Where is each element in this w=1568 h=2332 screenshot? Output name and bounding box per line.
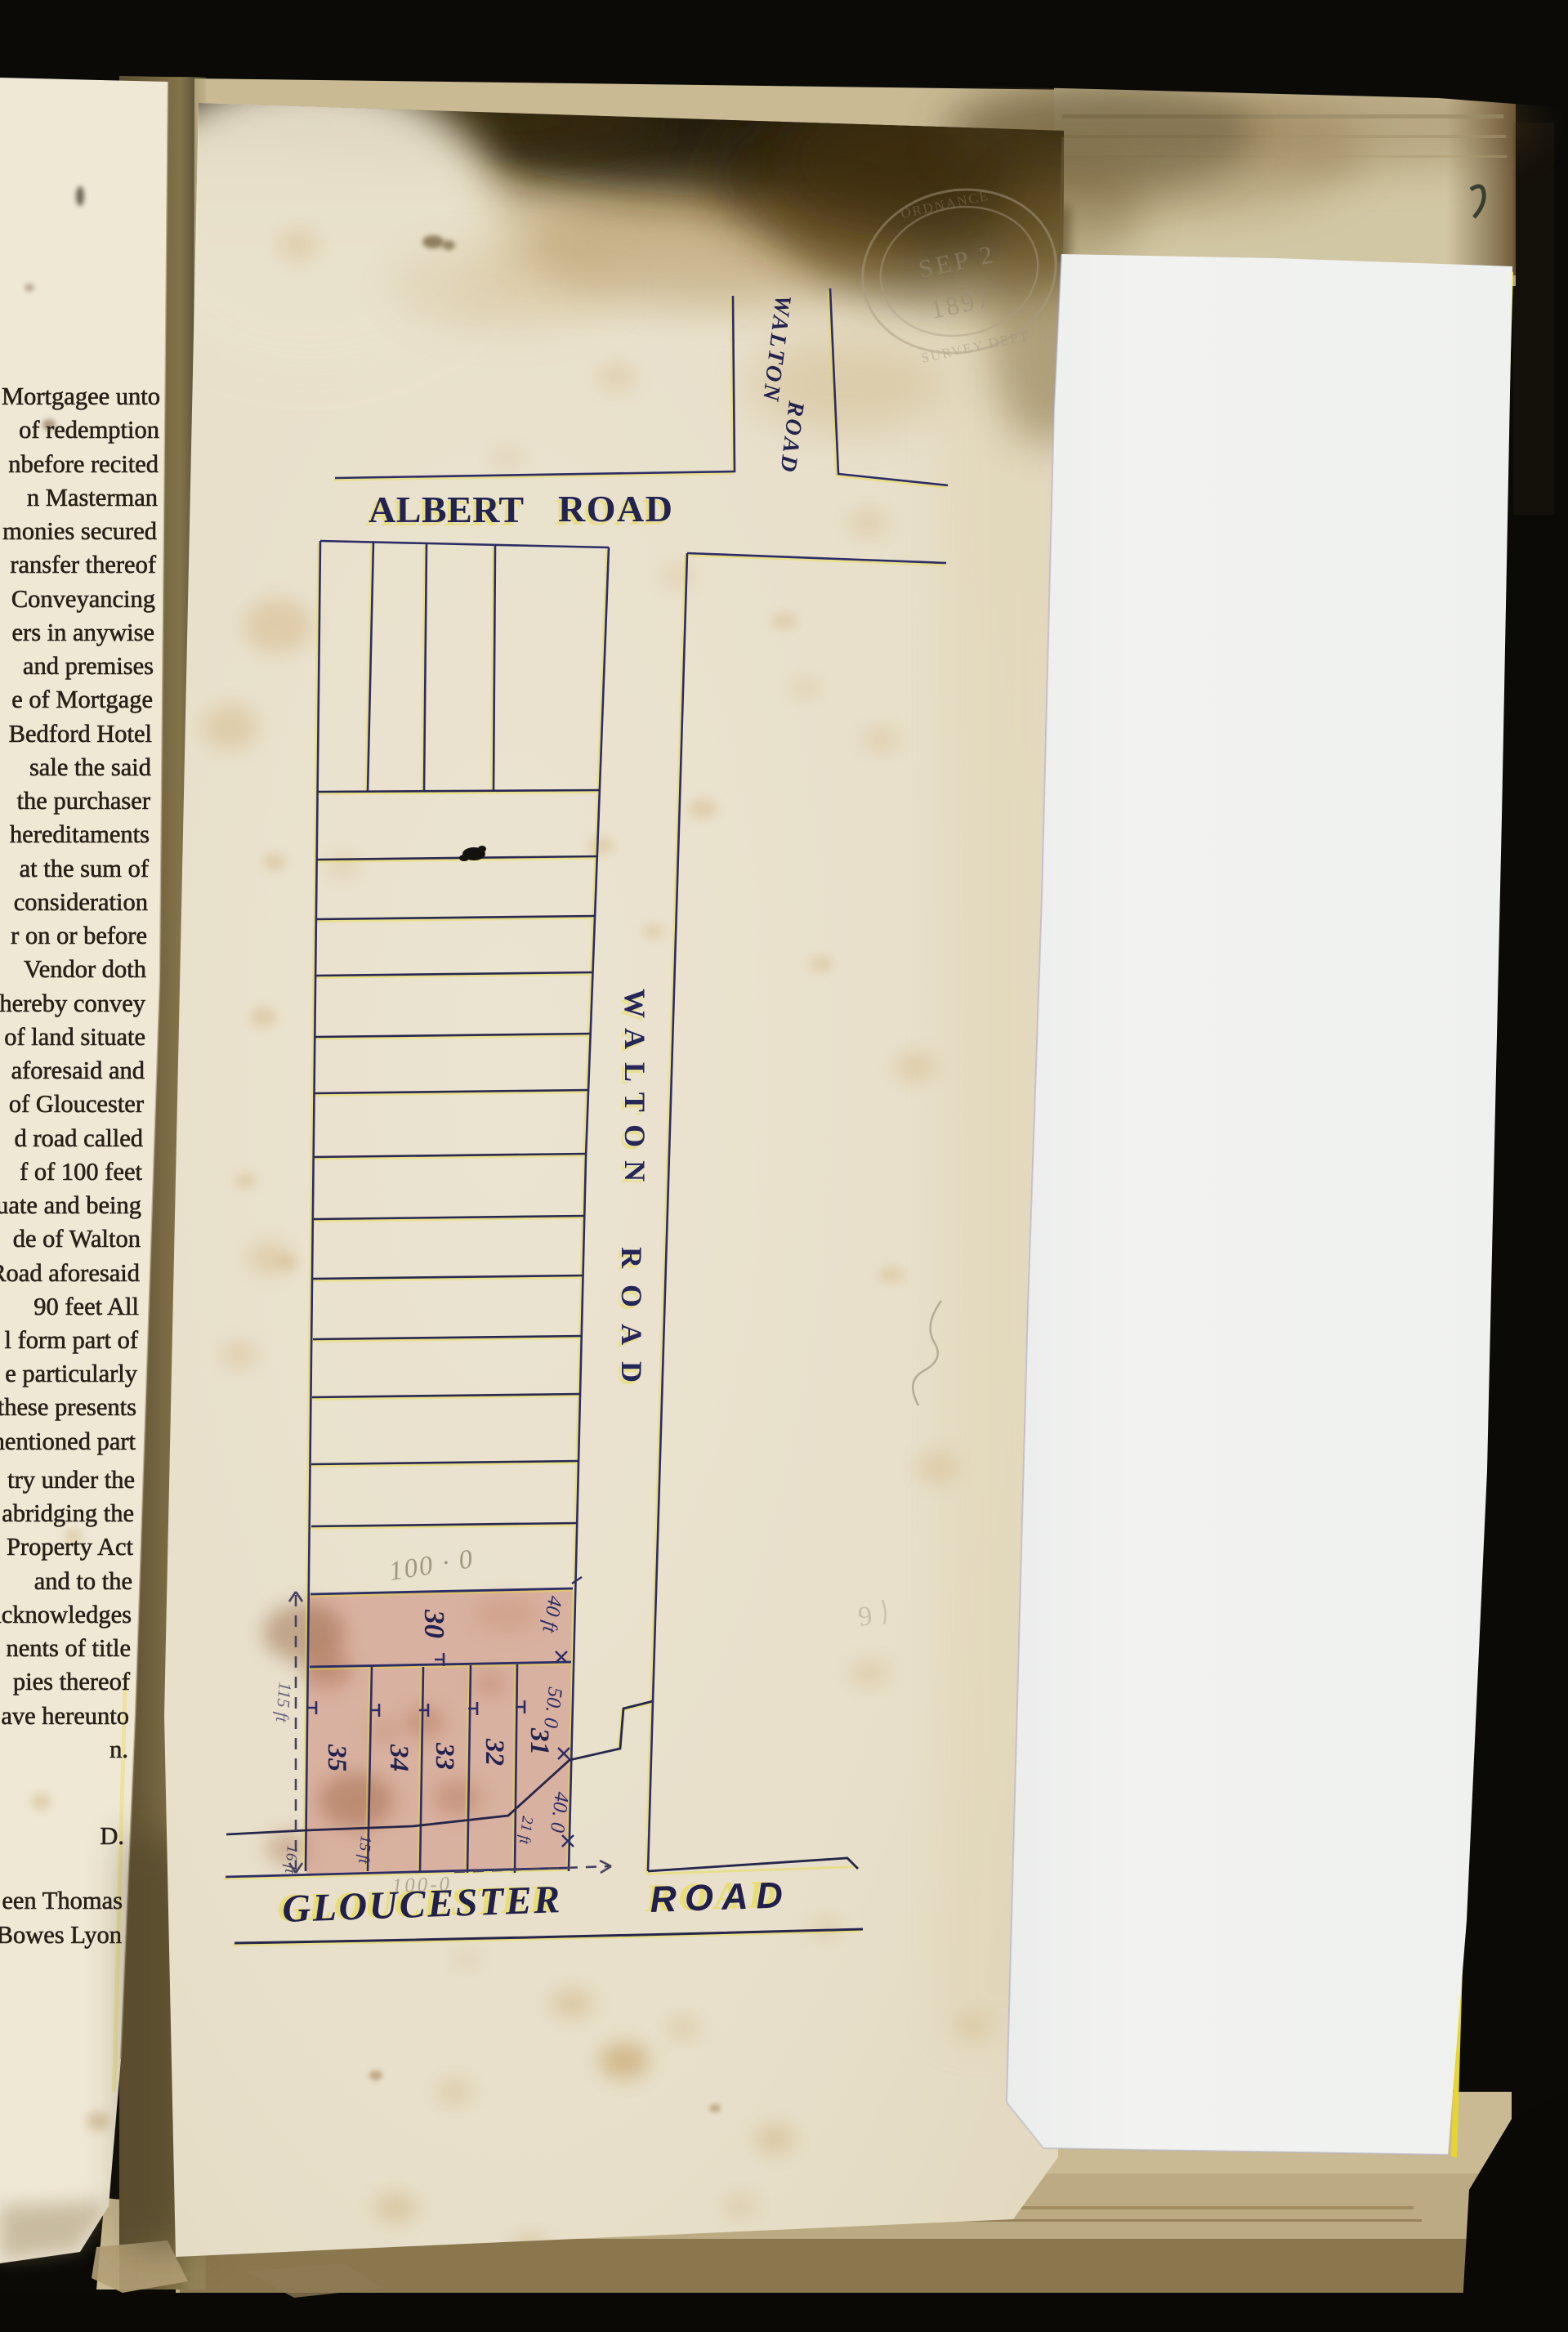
- svg-text:ave hereunto: ave hereunto: [1, 1702, 129, 1730]
- svg-text:nentioned part: nentioned part: [0, 1427, 136, 1455]
- svg-text:100-0: 100-0: [391, 1873, 452, 1897]
- svg-text:Property Act: Property Act: [7, 1533, 134, 1561]
- svg-text:31: 31: [525, 1727, 554, 1755]
- svg-text:uate and being: uate and being: [0, 1191, 141, 1219]
- svg-text:ALBERT: ALBERT: [369, 489, 525, 530]
- svg-text:33: 33: [430, 1742, 459, 1770]
- svg-text:e of Mortgage: e of Mortgage: [11, 686, 153, 713]
- svg-text:at the sum of: at the sum of: [20, 855, 150, 882]
- svg-text:aforesaid and: aforesaid and: [11, 1057, 145, 1084]
- svg-text:Vendor doth: Vendor doth: [24, 955, 146, 983]
- svg-text:Road aforesaid: Road aforesaid: [0, 1259, 140, 1287]
- svg-text:ROAD: ROAD: [615, 1247, 648, 1399]
- svg-text:hereby convey: hereby convey: [0, 990, 146, 1017]
- svg-text:nents of title: nents of title: [7, 1634, 131, 1662]
- svg-text:ers in anywise: ers in anywise: [12, 619, 154, 646]
- svg-text:monies secured: monies secured: [2, 517, 157, 545]
- svg-text:of redemption: of redemption: [19, 416, 159, 444]
- svg-text:15 ft: 15 ft: [355, 1835, 374, 1865]
- svg-text:acknowledges: acknowledges: [0, 1601, 132, 1628]
- svg-text:een Thomas: een Thomas: [2, 1887, 123, 1914]
- svg-text:90 feet All: 90 feet All: [34, 1293, 139, 1320]
- svg-text:l form part of: l form part of: [5, 1326, 139, 1354]
- svg-text:ROAD: ROAD: [558, 488, 673, 529]
- svg-text:sale the said: sale the said: [29, 753, 151, 781]
- svg-text:nbefore recited: nbefore recited: [8, 450, 159, 478]
- svg-text:21 ft: 21 ft: [516, 1815, 536, 1845]
- svg-text:e particularly: e particularly: [5, 1360, 137, 1387]
- svg-text:of Gloucester: of Gloucester: [9, 1090, 144, 1118]
- svg-text:16 ft: 16 ft: [281, 1845, 301, 1875]
- svg-text:Conveyancing: Conveyancing: [11, 585, 155, 613]
- svg-text:35: 35: [322, 1744, 351, 1771]
- svg-text:D.: D.: [100, 1822, 124, 1850]
- svg-text:ransfer thereof: ransfer thereof: [10, 551, 156, 579]
- svg-text:Bowes Lyon: Bowes Lyon: [0, 1921, 122, 1949]
- svg-text:f of 100 feet: f of 100 feet: [20, 1158, 142, 1186]
- svg-text:32: 32: [480, 1738, 509, 1766]
- svg-text:hereditaments: hereditaments: [10, 820, 150, 848]
- svg-text:de of Walton: de of Walton: [13, 1225, 141, 1253]
- svg-text:try under the: try under the: [7, 1466, 135, 1494]
- svg-text:these presents: these presents: [0, 1393, 136, 1421]
- svg-text:d road called: d road called: [14, 1124, 143, 1152]
- svg-text:115 ft: 115 ft: [272, 1682, 296, 1724]
- svg-text:Mortgagee unto: Mortgagee unto: [2, 382, 160, 410]
- svg-text:and premises: and premises: [23, 652, 154, 680]
- svg-text:n Masterman: n Masterman: [27, 484, 158, 512]
- svg-text:ROAD: ROAD: [650, 1874, 792, 1920]
- svg-text:n.: n.: [109, 1736, 128, 1763]
- svg-text:Bedford Hotel: Bedford Hotel: [9, 720, 152, 748]
- svg-text:pies thereof: pies thereof: [13, 1668, 131, 1695]
- svg-text:r on or before: r on or before: [11, 922, 147, 949]
- svg-text:30: 30: [418, 1609, 450, 1638]
- svg-text:abridging the: abridging the: [2, 1499, 134, 1527]
- svg-text:and to the: and to the: [34, 1567, 132, 1595]
- svg-text:34: 34: [384, 1744, 413, 1771]
- svg-text:the purchaser: the purchaser: [17, 787, 150, 815]
- svg-text:WALTON: WALTON: [619, 989, 651, 1195]
- svg-text:of land situate: of land situate: [4, 1023, 145, 1051]
- svg-text:consideration: consideration: [14, 888, 148, 916]
